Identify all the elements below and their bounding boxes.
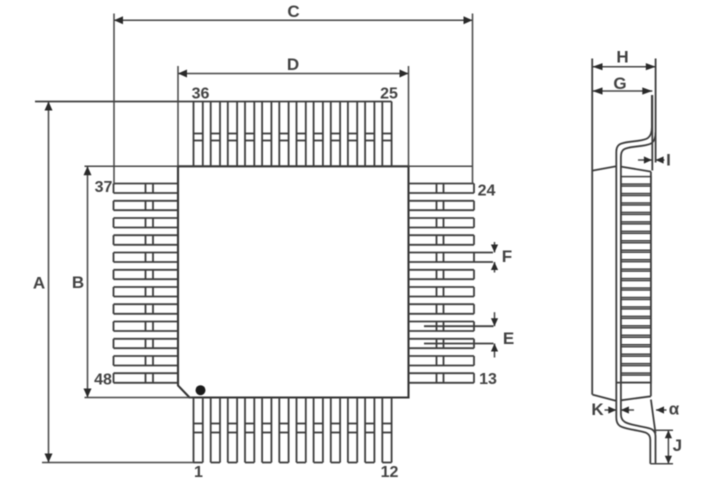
svg-text:H: H <box>616 47 628 66</box>
svg-text:1: 1 <box>194 464 203 481</box>
svg-text:C: C <box>287 2 299 21</box>
svg-text:α: α <box>669 400 680 419</box>
svg-text:A: A <box>33 274 45 293</box>
svg-text:D: D <box>287 55 299 74</box>
svg-text:G: G <box>613 74 626 93</box>
svg-text:K: K <box>591 400 604 419</box>
svg-text:I: I <box>666 151 671 170</box>
svg-text:48: 48 <box>94 372 112 389</box>
svg-text:J: J <box>673 436 682 455</box>
svg-text:36: 36 <box>192 86 210 103</box>
svg-text:37: 37 <box>95 179 113 196</box>
svg-text:12: 12 <box>381 464 399 481</box>
svg-text:24: 24 <box>478 182 496 199</box>
svg-text:25: 25 <box>380 86 398 103</box>
svg-text:13: 13 <box>479 371 497 388</box>
svg-text:E: E <box>503 329 514 348</box>
svg-text:B: B <box>72 273 84 292</box>
svg-text:F: F <box>502 247 512 266</box>
